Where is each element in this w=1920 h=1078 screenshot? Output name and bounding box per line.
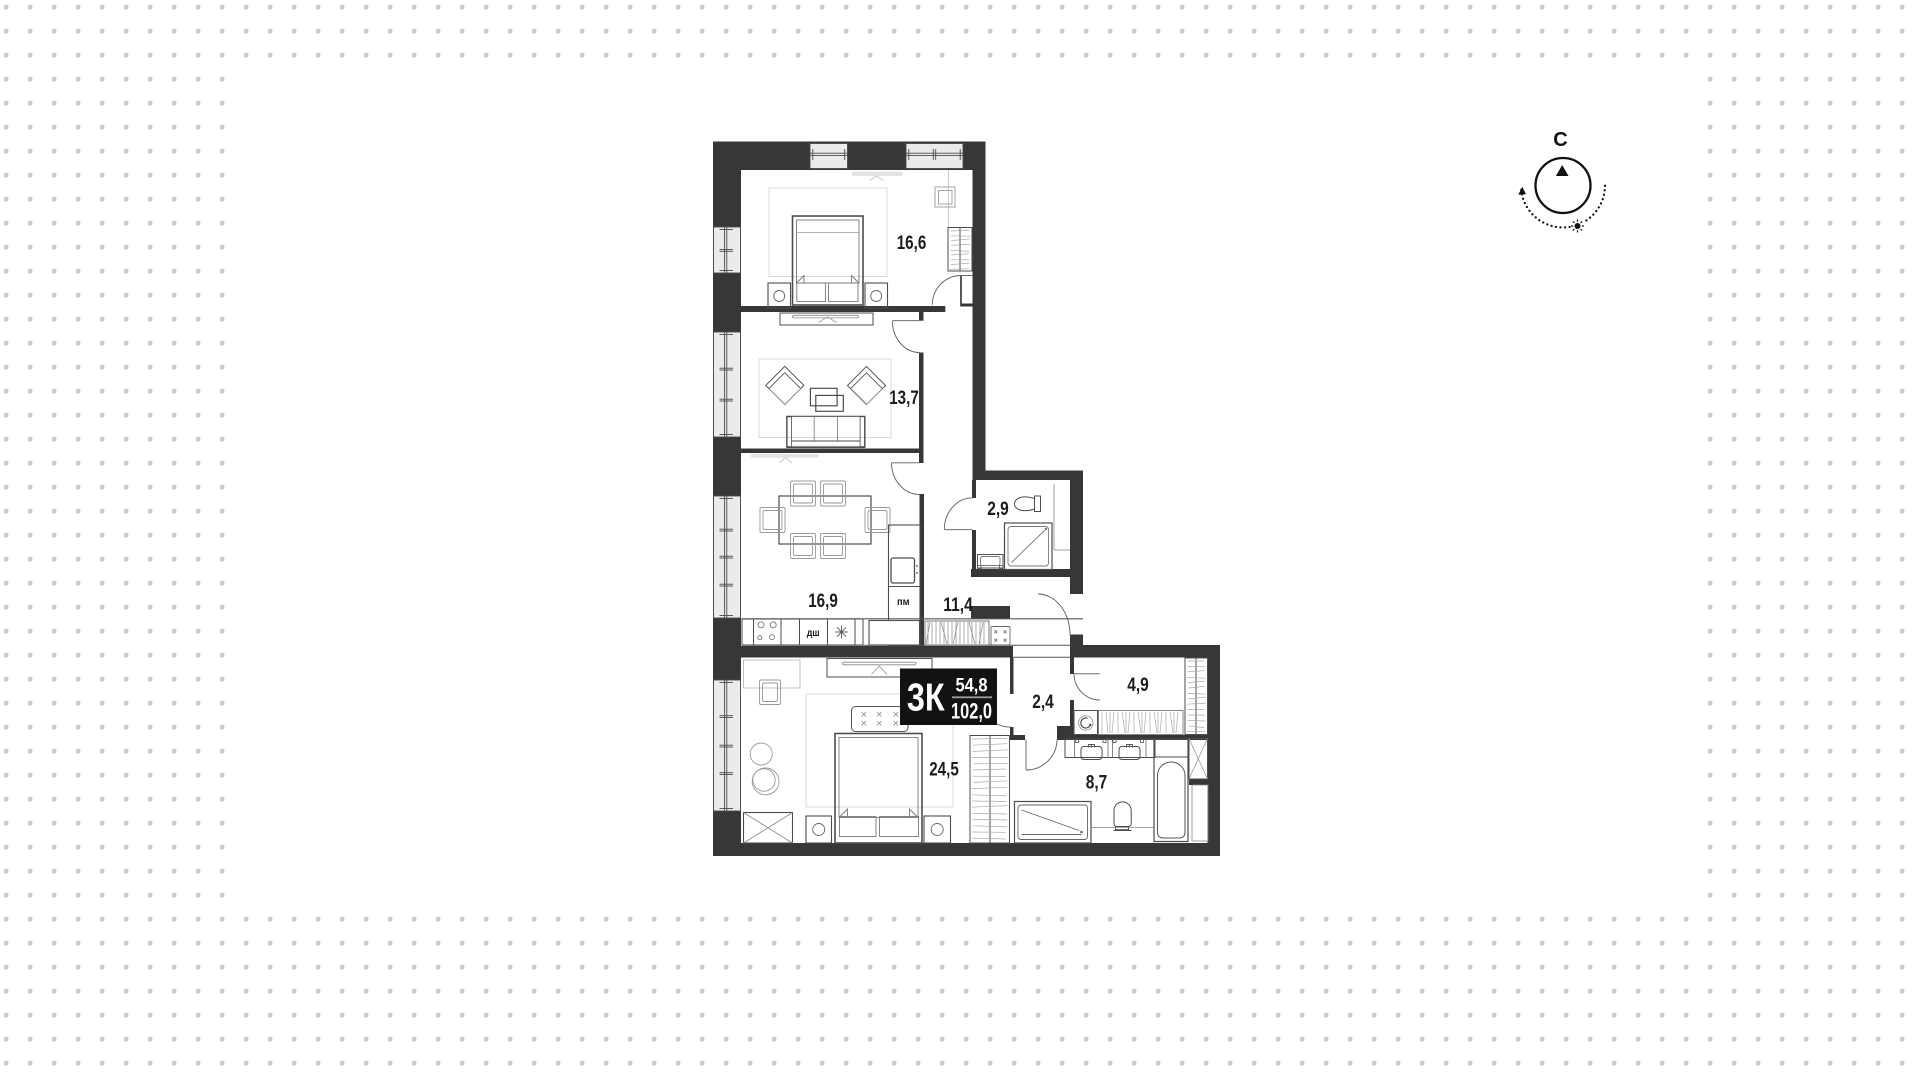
svg-text:16,6: 16,6 [897, 233, 927, 254]
svg-text:16,9: 16,9 [808, 591, 838, 612]
svg-text:8,7: 8,7 [1086, 773, 1108, 794]
svg-text:13,7: 13,7 [889, 388, 919, 409]
svg-text:4,9: 4,9 [1127, 675, 1149, 696]
svg-text:54,8: 54,8 [956, 676, 988, 697]
svg-text:С: С [1553, 129, 1567, 151]
svg-text:11,4: 11,4 [943, 595, 973, 616]
svg-text:2,9: 2,9 [987, 499, 1009, 520]
svg-text:24,5: 24,5 [929, 759, 959, 780]
svg-text:2,4: 2,4 [1032, 692, 1054, 713]
svg-text:102,0: 102,0 [951, 699, 992, 724]
svg-text:пм: пм [897, 596, 910, 608]
svg-text:3К: 3К [907, 677, 945, 720]
svg-text:дш: дш [807, 627, 820, 639]
